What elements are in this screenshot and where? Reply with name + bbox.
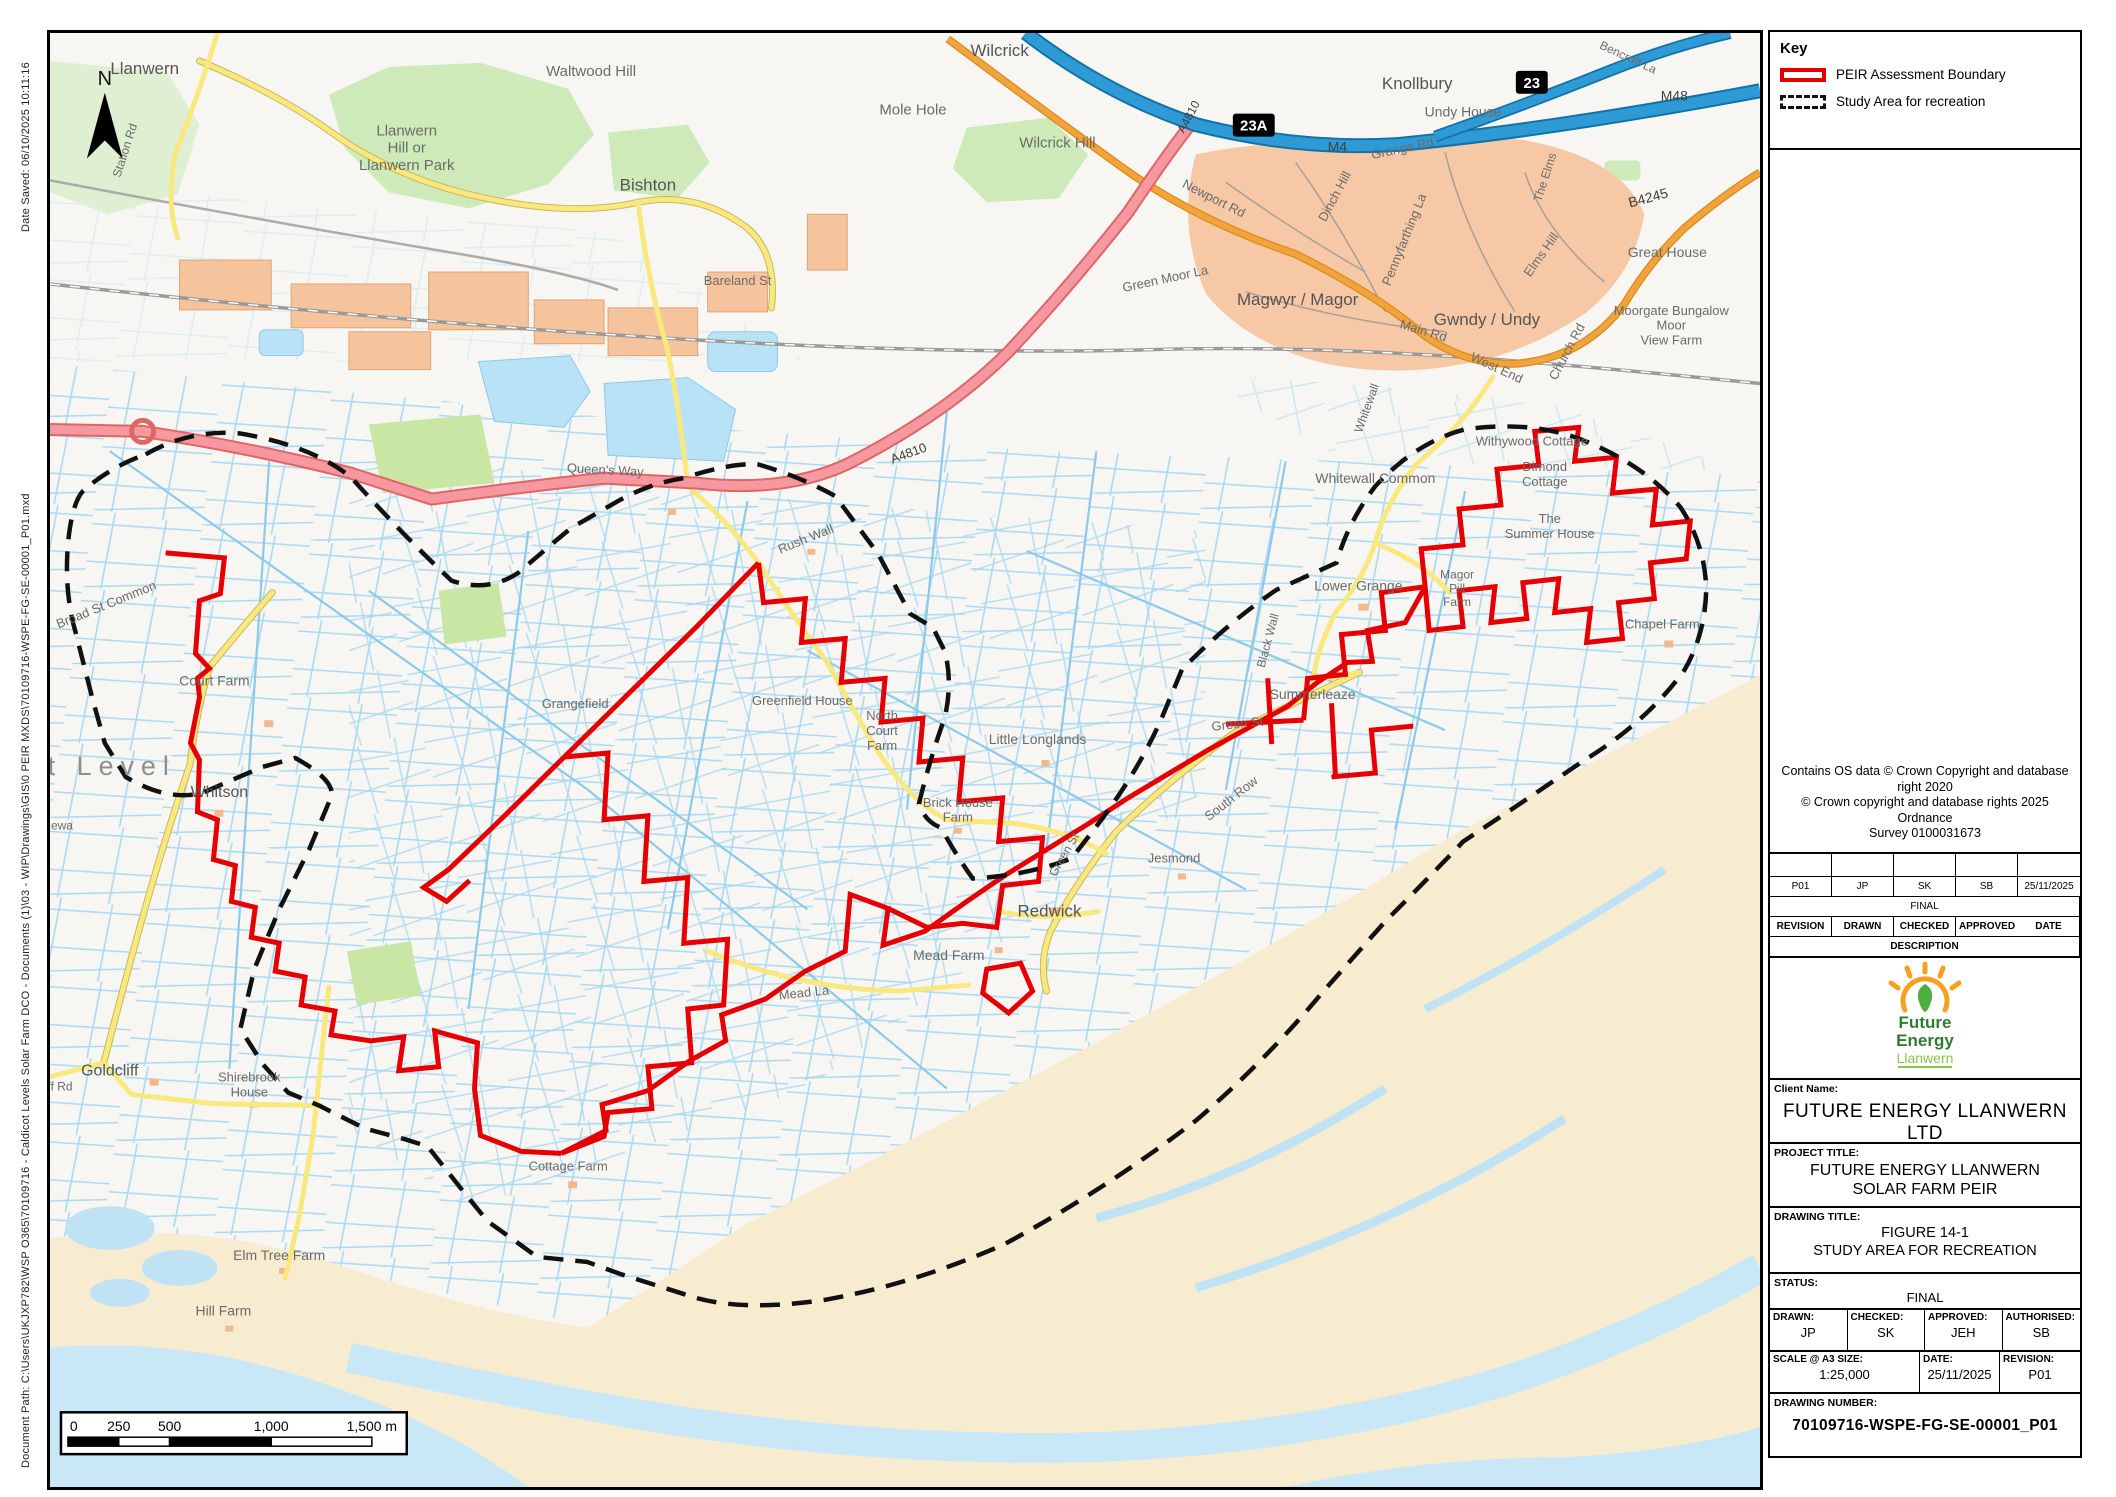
map-label: Cottage Farm	[529, 1158, 608, 1173]
notes-area: Contains OS data © Crown Copyright and d…	[1770, 150, 2080, 854]
company-logo: Future Energy Llanwern	[1770, 958, 2080, 1080]
revision-cell: 25/11/2025	[2018, 877, 2080, 897]
map-label: M4	[1328, 139, 1348, 155]
map-label: ewa	[51, 819, 73, 833]
scale-cell: SCALE @ A3 SIZE: 1:25,000	[1770, 1352, 1920, 1392]
revision-description: DESCRIPTION	[1770, 937, 2080, 956]
map-label: Great House	[1628, 244, 1707, 260]
map-label: Wilcrick	[971, 41, 1030, 60]
motorway-junction-badge: 23A	[1233, 114, 1275, 137]
scale-label: SCALE @ A3 SIZE:	[1773, 1354, 1916, 1365]
scale-date-revision-row: SCALE @ A3 SIZE: 1:25,000 DATE: 25/11/20…	[1770, 1352, 2080, 1394]
date-saved-text: Date Saved: 06/10/2025 10:11:16	[20, 62, 32, 232]
scale-tick: 500	[158, 1418, 182, 1434]
drawing-number-box: DRAWING NUMBER: 70109716-WSPE-FG-SE-0000…	[1770, 1394, 2080, 1456]
map-svg: LlanwernStation RdWaltwood HillLlanwernH…	[50, 33, 1760, 1487]
map-label: Summerleaze	[1270, 686, 1356, 702]
revision-cell	[1770, 854, 1832, 877]
map-label: Undy House	[1425, 104, 1502, 120]
approved-value: JEH	[1928, 1325, 1999, 1340]
revision-cell	[1956, 854, 2018, 877]
map-label: Whitson	[191, 784, 249, 801]
status-box: STATUS: FINAL	[1770, 1274, 2080, 1310]
map-label: Grangefield	[542, 696, 609, 711]
scale-tick: 250	[107, 1418, 131, 1434]
revision-header: DRAWN	[1832, 917, 1894, 937]
revision-header: APPROVED	[1956, 917, 2018, 937]
revision-cell: SB	[1956, 877, 2018, 897]
map-label: ff Rd	[50, 1080, 72, 1094]
map-label: Hill Farm	[196, 1303, 252, 1319]
revision-header: REVISION	[1770, 917, 1832, 937]
checked-label: CHECKED:	[1851, 1312, 1922, 1323]
scale-tick: 1,000	[254, 1418, 289, 1434]
map-label: Mole Hole	[879, 102, 946, 119]
future-energy-logo-icon: Future Energy Llanwern	[1850, 962, 2000, 1074]
map-label: Gwndy / Undy	[1434, 310, 1541, 329]
map-label: Withywood Cottage	[1476, 433, 1588, 448]
map-label: Bishton	[620, 175, 676, 194]
revision-label: REVISION:	[2003, 1354, 2077, 1365]
north-label: N	[98, 68, 112, 90]
map-label: Court Farm	[179, 672, 250, 688]
map-label: Whitewall Common	[1315, 470, 1435, 486]
revision-header: CHECKED	[1894, 917, 1956, 937]
revision-table: P01 JP SK SB 25/11/2025 FINAL REVISION D…	[1770, 854, 2080, 958]
revision-cell	[1832, 854, 1894, 877]
map-label: Greenfield House	[752, 693, 853, 708]
figure-page: Date Saved: 06/10/2025 10:11:16 Document…	[0, 0, 2116, 1497]
scale-value: 1:25,000	[1773, 1367, 1916, 1382]
date-cell: DATE: 25/11/2025	[1920, 1352, 2000, 1392]
client-name-value: FUTURE ENERGY LLANWERN LTD	[1770, 1101, 2080, 1145]
client-name-box: Client Name: FUTURE ENERGY LLANWERN LTD	[1770, 1080, 2080, 1144]
copyright-text: Contains OS data © Crown Copyright and d…	[1770, 758, 2080, 852]
logo-text-future: Future	[1899, 1013, 1952, 1032]
legend-item-label: PEIR Assessment Boundary	[1836, 67, 2006, 82]
title-block-column: Key PEIR Assessment Boundary Study Area …	[1768, 30, 2082, 1458]
svg-text:23A: 23A	[1240, 118, 1268, 135]
legend-item-peir: PEIR Assessment Boundary	[1780, 67, 2070, 82]
map-label: DimondCottage	[1522, 459, 1567, 489]
motorway-junction-badge: 23	[1516, 71, 1548, 94]
revision-cell-box: REVISION: P01	[2000, 1352, 2080, 1392]
map-label: Lower Grange	[1314, 578, 1403, 594]
drawing-title-label: DRAWING TITLE:	[1770, 1208, 2080, 1223]
checked-value: SK	[1851, 1325, 1922, 1340]
authorised-label: AUTHORISED:	[2006, 1312, 2078, 1323]
map-label: M48	[1661, 88, 1688, 104]
date-label: DATE:	[1923, 1354, 1996, 1365]
date-value: 25/11/2025	[1923, 1367, 1996, 1382]
drawn-cell: DRAWN: JP	[1770, 1310, 1848, 1350]
approved-cell: APPROVED: JEH	[1925, 1310, 2003, 1350]
project-title-box: PROJECT TITLE: FUTURE ENERGY LLANWERN SO…	[1770, 1144, 2080, 1208]
signoff-row: DRAWN: JP CHECKED: SK APPROVED: JEH AUTH…	[1770, 1310, 2080, 1352]
revision-cell: JP	[1832, 877, 1894, 897]
drawing-title-box: DRAWING TITLE: FIGURE 14-1 STUDY AREA FO…	[1770, 1208, 2080, 1274]
document-path-text: Document Path: C:\Users\UKJXP782\WSP O36…	[20, 493, 32, 1468]
map-canvas: LlanwernStation RdWaltwood HillLlanwernH…	[47, 30, 1763, 1490]
drawing-number-value: 70109716-WSPE-FG-SE-00001_P01	[1770, 1417, 2080, 1435]
legend-title: Key	[1780, 40, 2070, 57]
map-label: Bareland St	[704, 273, 772, 288]
scale-bar: 0 250 500 1,000 1,500 m	[61, 1412, 407, 1454]
map-label: t Level	[50, 751, 176, 781]
revision-cell: SK	[1894, 877, 1956, 897]
status-label: STATUS:	[1770, 1274, 2080, 1289]
revision-value: P01	[2003, 1367, 2077, 1382]
drawn-value: JP	[1773, 1325, 1844, 1340]
revision-header: DATE	[2018, 917, 2080, 937]
legend: Key PEIR Assessment Boundary Study Area …	[1770, 32, 2080, 150]
logo-text-energy: Energy	[1896, 1031, 1954, 1050]
legend-item-label: Study Area for recreation	[1836, 94, 1985, 109]
project-title-value: FUTURE ENERGY LLANWERN SOLAR FARM PEIR	[1770, 1161, 2080, 1199]
peir-boundary-swatch	[1780, 68, 1826, 82]
client-name-label: Client Name:	[1770, 1080, 2080, 1095]
scale-tick: 0	[70, 1418, 78, 1434]
drawing-title-value: FIGURE 14-1 STUDY AREA FOR RECREATION	[1770, 1224, 2080, 1260]
map-label: Llanwern	[110, 59, 179, 78]
checked-cell: CHECKED: SK	[1848, 1310, 1926, 1350]
legend-item-study-area: Study Area for recreation	[1780, 94, 2070, 109]
authorised-cell: AUTHORISED: SB	[2003, 1310, 2081, 1350]
map-label: Mead Farm	[913, 947, 984, 963]
map-label: Little Longlands	[989, 731, 1087, 747]
revision-cell	[1894, 854, 1956, 877]
map-label: Wilcrick Hill	[1019, 135, 1095, 152]
revision-final: FINAL	[1770, 897, 2080, 917]
project-title-label: PROJECT TITLE:	[1770, 1144, 2080, 1159]
map-label: Chapel Farm	[1625, 617, 1700, 632]
study-area-swatch	[1780, 95, 1826, 109]
revision-cell	[2018, 854, 2080, 877]
map-label: Elm Tree Farm	[233, 1247, 325, 1263]
svg-text:23: 23	[1523, 75, 1540, 92]
map-label: Goldcliff	[81, 1063, 139, 1080]
map-label: Knollbury	[1382, 74, 1453, 93]
drawing-number-label: DRAWING NUMBER:	[1770, 1394, 2080, 1409]
map-label: Jesmond	[1148, 851, 1201, 866]
map-label: Magwyr / Magor	[1237, 290, 1359, 309]
map-label: NorthCourtFarm	[866, 708, 898, 753]
approved-label: APPROVED:	[1928, 1312, 1999, 1323]
logo-text-llanwern: Llanwern	[1897, 1050, 1954, 1066]
drawn-label: DRAWN:	[1773, 1312, 1844, 1323]
revision-cell: P01	[1770, 877, 1832, 897]
map-label: Redwick	[1018, 901, 1083, 920]
authorised-value: SB	[2006, 1325, 2078, 1340]
scale-tick: 1,500 m	[347, 1418, 397, 1434]
map-label: Waltwood Hill	[546, 63, 636, 80]
status-value: FINAL	[1770, 1290, 2080, 1305]
